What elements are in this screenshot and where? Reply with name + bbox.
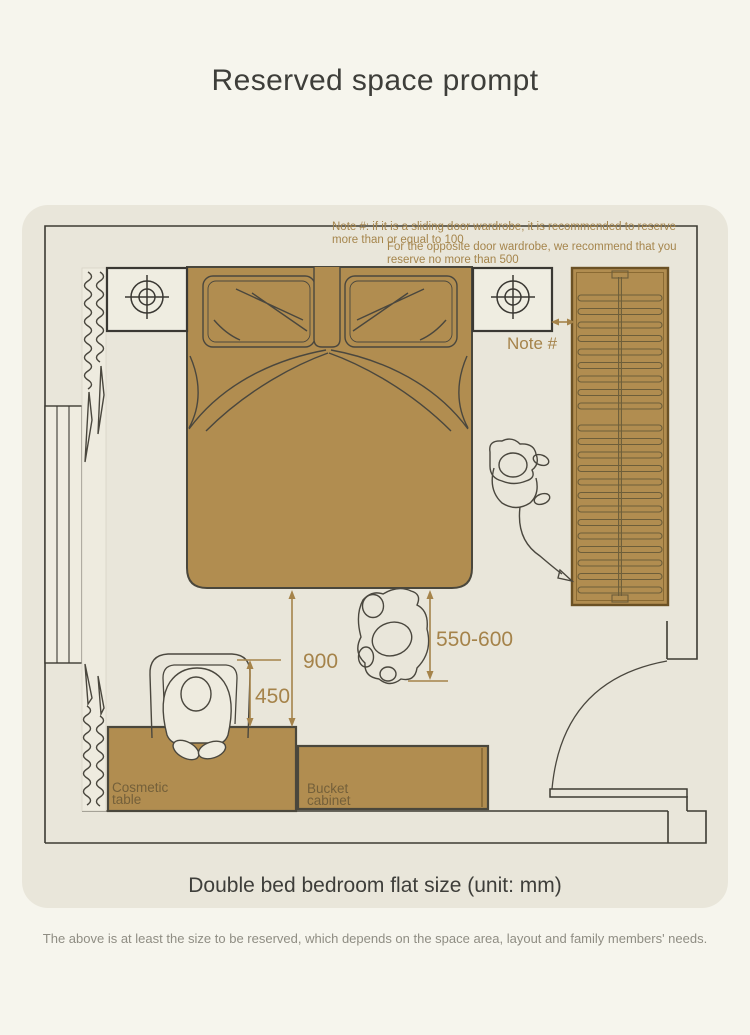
note-opposite-door-line1: For the opposite door wardrobe, we recom… [387, 241, 677, 254]
dim-900-label: 900 [303, 650, 338, 673]
floor-plan-card: 900 450 550-600 Note # Cosmetic table Bu… [22, 205, 728, 908]
person-reaching [490, 439, 572, 581]
curtains [82, 268, 106, 811]
floor-plan: 900 450 550-600 Note # Cosmetic table Bu… [22, 205, 728, 865]
cosmetic-table-label-line2: table [112, 792, 141, 807]
nightstand-left [107, 268, 187, 331]
double-bed [187, 267, 472, 588]
wardrobe [572, 268, 668, 605]
page-title: Reserved space prompt [0, 64, 750, 98]
footer-note: The above is at least the size to be res… [0, 931, 750, 946]
note-opposite-door: For the opposite door wardrobe, we recom… [387, 241, 677, 267]
note-opposite-door-line2: reserve no more than 500 [387, 254, 677, 267]
bucket-cabinet-label-line2: cabinet [307, 793, 351, 808]
nightstand-right [473, 268, 552, 331]
note-sliding-door-line1: Note #: if it is a sliding door wardrobe… [332, 221, 676, 234]
dim-450-label: 450 [255, 685, 290, 708]
plan-caption: Double bed bedroom flat size (unit: mm) [0, 874, 750, 898]
person-walking [358, 589, 429, 684]
dim-550-600-label: 550-600 [436, 628, 513, 651]
door [550, 661, 687, 797]
window [45, 406, 82, 663]
page: Reserved space prompt [0, 0, 750, 1035]
note-ref-label: Note # [507, 334, 558, 353]
